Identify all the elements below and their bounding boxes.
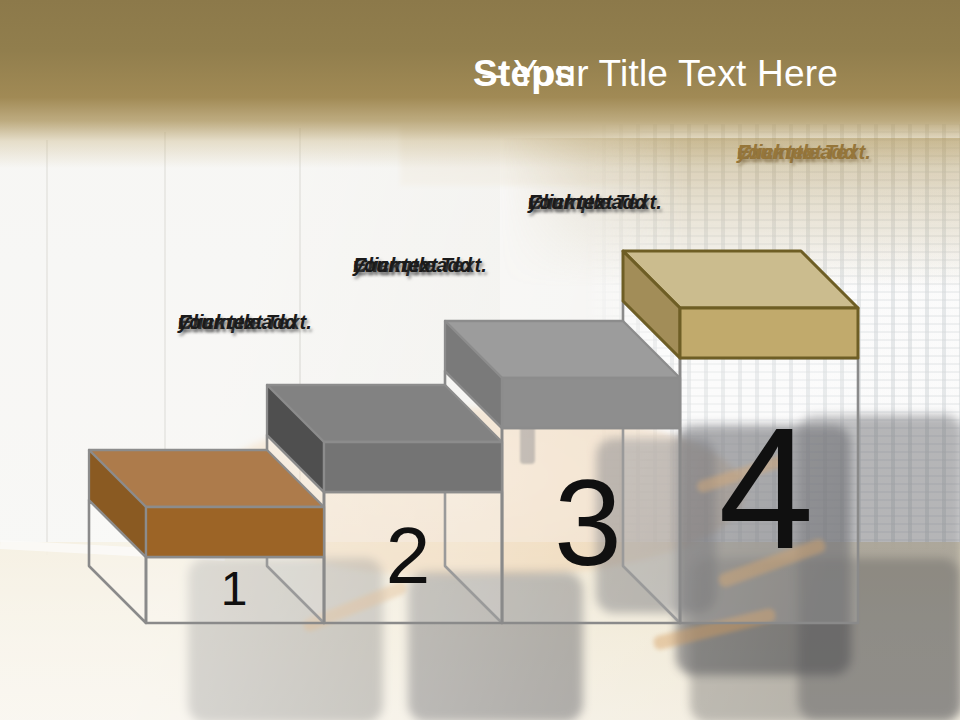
step-3-number: 3 bbox=[554, 453, 622, 593]
label-line: your text. bbox=[528, 188, 618, 216]
slide: Steps– Your Title Text Here Example Text… bbox=[0, 0, 960, 720]
step-1-group[interactable] bbox=[89, 450, 324, 623]
steps-diagram bbox=[0, 0, 960, 720]
step-4-number: 4 bbox=[718, 389, 814, 587]
label-line: your text. bbox=[737, 138, 827, 166]
step-4-slab-front-face[interactable] bbox=[680, 308, 858, 358]
step-2-number: 2 bbox=[386, 510, 431, 602]
step-1-number: 1 bbox=[221, 561, 248, 616]
label-line: your text. bbox=[178, 308, 268, 336]
step-1-slab-front-face[interactable] bbox=[146, 507, 324, 557]
label-line: your text. bbox=[353, 251, 443, 279]
step-3-slab-front-face[interactable] bbox=[502, 378, 680, 428]
step-2-slab-front-face[interactable] bbox=[324, 442, 502, 492]
slide-title-rest: – Your Title Text Here bbox=[483, 53, 838, 95]
